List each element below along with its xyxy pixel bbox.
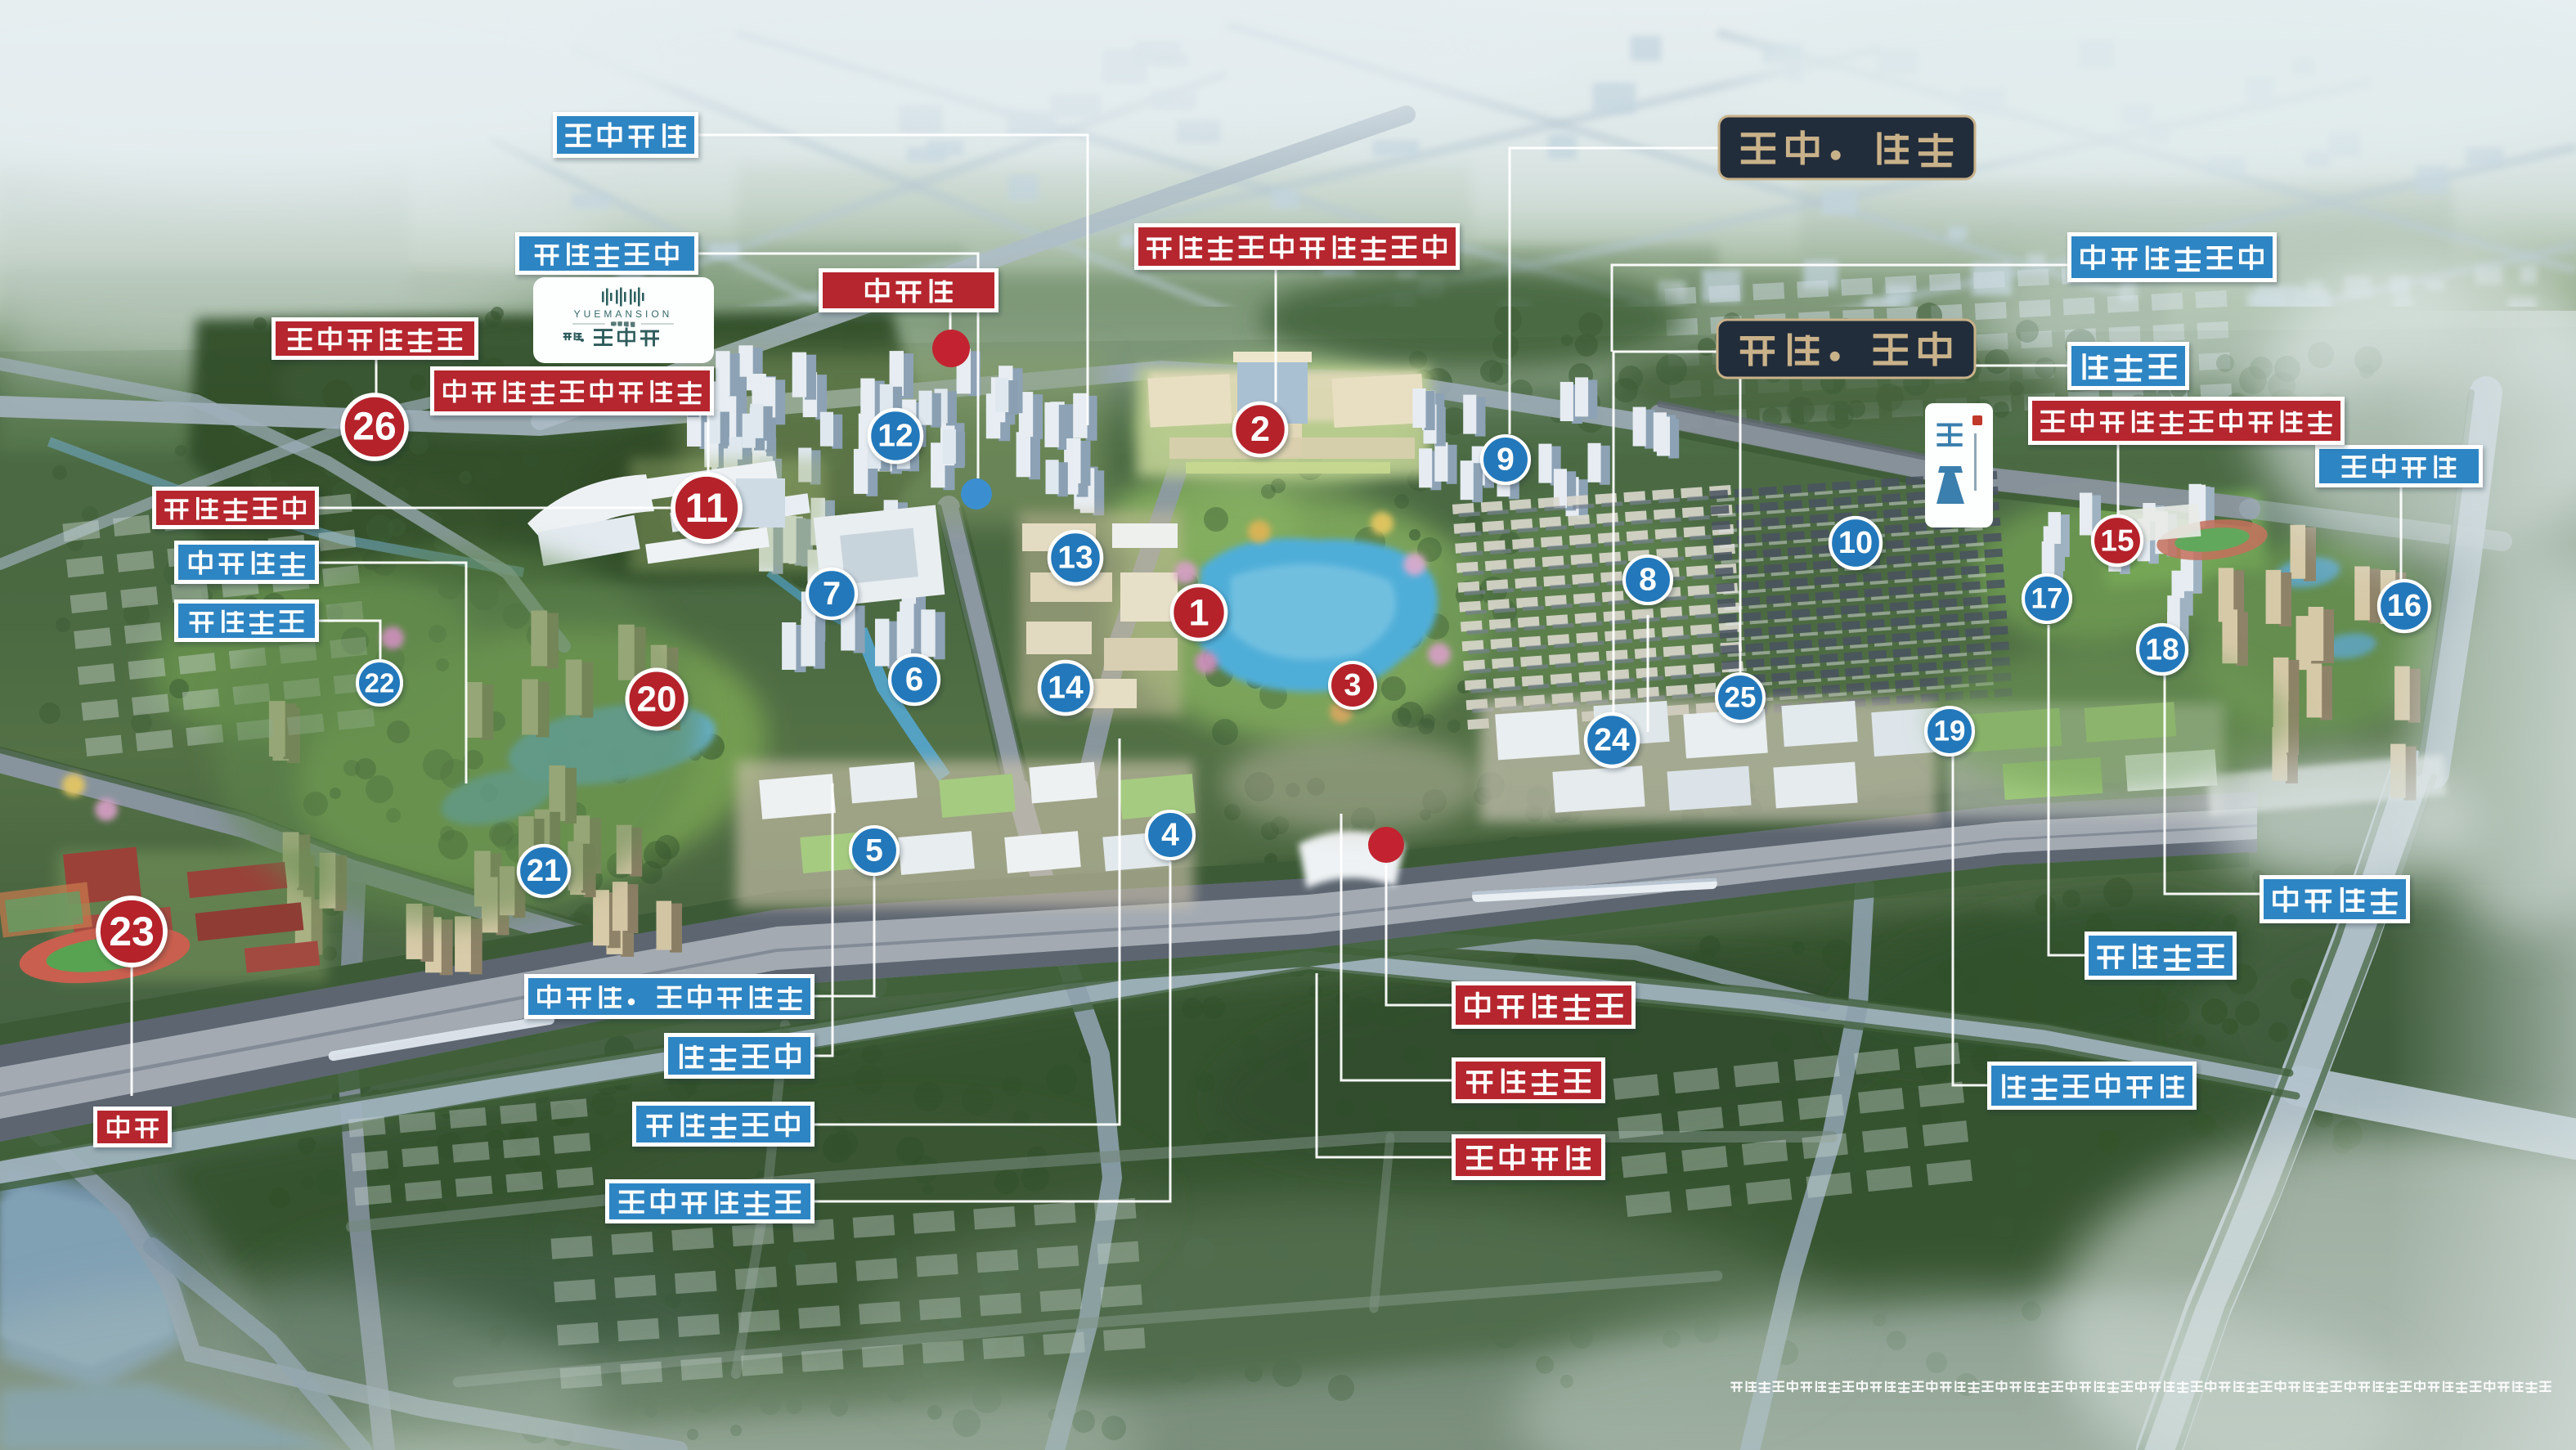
svg-text:7: 7 [823,576,841,612]
svg-text:13: 13 [1057,541,1093,576]
svg-text:25: 25 [1725,682,1757,714]
svg-text:19: 19 [1934,716,1966,747]
svg-text:18: 18 [2145,633,2179,667]
svg-text:16: 16 [2387,589,2421,623]
svg-text:8: 8 [1639,563,1657,598]
svg-text:9: 9 [1497,442,1515,478]
svg-text:15: 15 [2100,524,2134,558]
svg-text:11: 11 [685,485,729,531]
svg-text:4: 4 [1161,818,1179,853]
svg-text:5: 5 [865,833,883,869]
svg-text:24: 24 [1594,723,1630,758]
svg-text:14: 14 [1048,671,1084,706]
svg-text:22: 22 [365,668,395,698]
svg-text:1: 1 [1188,592,1209,634]
svg-text:21: 21 [527,854,561,888]
svg-text:12: 12 [877,419,913,454]
svg-text:26: 26 [352,406,396,449]
svg-text:6: 6 [905,662,923,698]
svg-text:3: 3 [1344,668,1361,703]
svg-text:YUEMANSION: YUEMANSION [574,308,673,320]
svg-text:17: 17 [2031,583,2063,615]
svg-text:10: 10 [1838,526,1873,560]
svg-text:23: 23 [109,909,155,954]
svg-text:20: 20 [637,680,677,720]
svg-text:2: 2 [1250,410,1270,449]
